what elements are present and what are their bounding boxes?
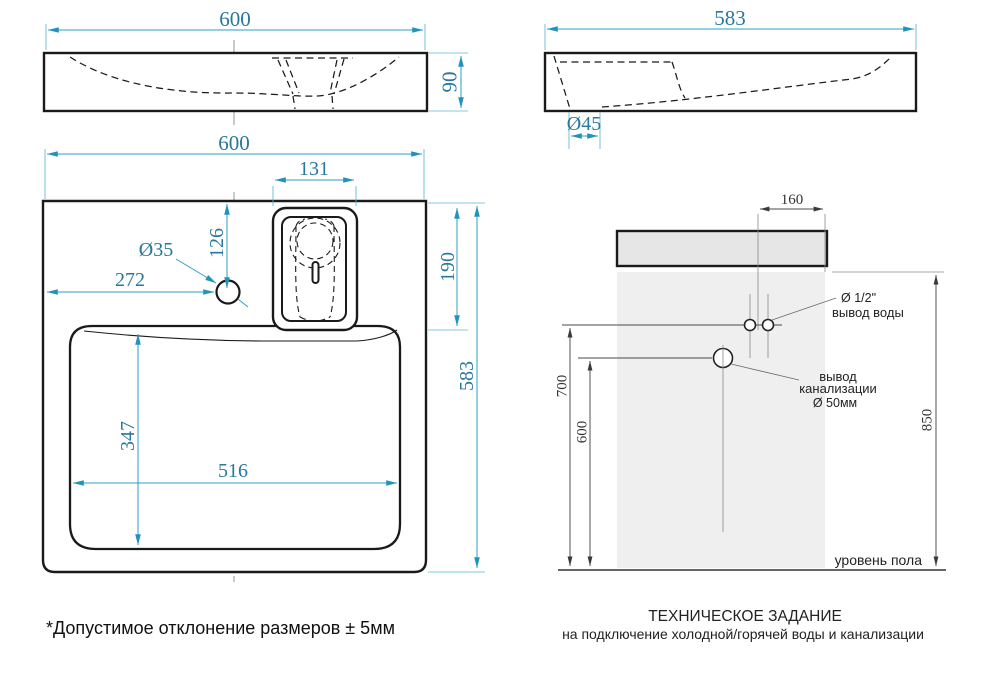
drawing-svg: 600 90 583 Ø45 600 131 126: [0, 0, 984, 678]
install-drain-label-2: канализации: [799, 381, 877, 396]
front-width-dim: 600: [219, 7, 251, 31]
install-drain-size-label: Ø 50мм: [813, 396, 857, 410]
install-water-size-label: Ø 1/2": [841, 291, 876, 305]
install-sink-silhouette: [617, 231, 827, 266]
plan-width-dim: 600: [218, 131, 250, 155]
side-drain-dim: Ø45: [567, 113, 601, 135]
install-rim-height-dim: 850: [919, 409, 935, 432]
install-water-label: вывод воды: [832, 305, 904, 320]
plan-view: 600 131 126 Ø35 272 190 583 347 516: [43, 131, 485, 582]
plan-width-extension: [45, 149, 424, 199]
plan-depth-dim: 583: [456, 361, 478, 391]
front-body: [44, 53, 427, 111]
plan-tap-left-dim: 272: [115, 269, 145, 291]
install-tap-offset-dim: 160: [781, 192, 804, 208]
side-width-dim: 583: [714, 6, 746, 30]
plan-recess-width-dim: 131: [299, 158, 329, 180]
spec-subtitle: на подключение холодной/горячей воды и к…: [562, 626, 924, 642]
plan-tap-hole: [217, 281, 240, 304]
spec-title: ТЕХНИЧЕСКОЕ ЗАДАНИЕ: [648, 608, 842, 625]
plan-recess-length-dim: 190: [437, 252, 459, 282]
plan-tap-hole-dim: Ø35: [139, 239, 173, 261]
front-view: 600 90: [44, 7, 468, 128]
install-drain-height-dim: 600: [574, 421, 590, 444]
technical-drawing-sheet: 600 90 583 Ø45 600 131 126: [0, 0, 984, 678]
front-height-dim: 90: [437, 72, 461, 93]
tolerance-note: *Допустимое отклонение размеров ± 5мм: [46, 618, 395, 638]
plan-tap-back-dim: 126: [206, 228, 228, 258]
install-floor-label: уровень пола: [835, 552, 923, 568]
install-water-outlet-left: [745, 320, 756, 331]
footer: *Допустимое отклонение размеров ± 5мм ТЕ…: [46, 608, 924, 642]
install-water-outlet-right: [763, 320, 774, 331]
install-water-height-dim: 700: [554, 375, 570, 398]
plan-bowl-depth-dim: 347: [117, 421, 139, 451]
plan-bowl-width-dim: 516: [218, 460, 248, 482]
plan-overflow-slot: [313, 262, 319, 283]
install-wall-panel: [617, 272, 825, 568]
installation-view: 160 700 600 850 уровень пола Ø 1/2" выво…: [554, 192, 946, 570]
side-view: 583 Ø45: [545, 6, 916, 149]
